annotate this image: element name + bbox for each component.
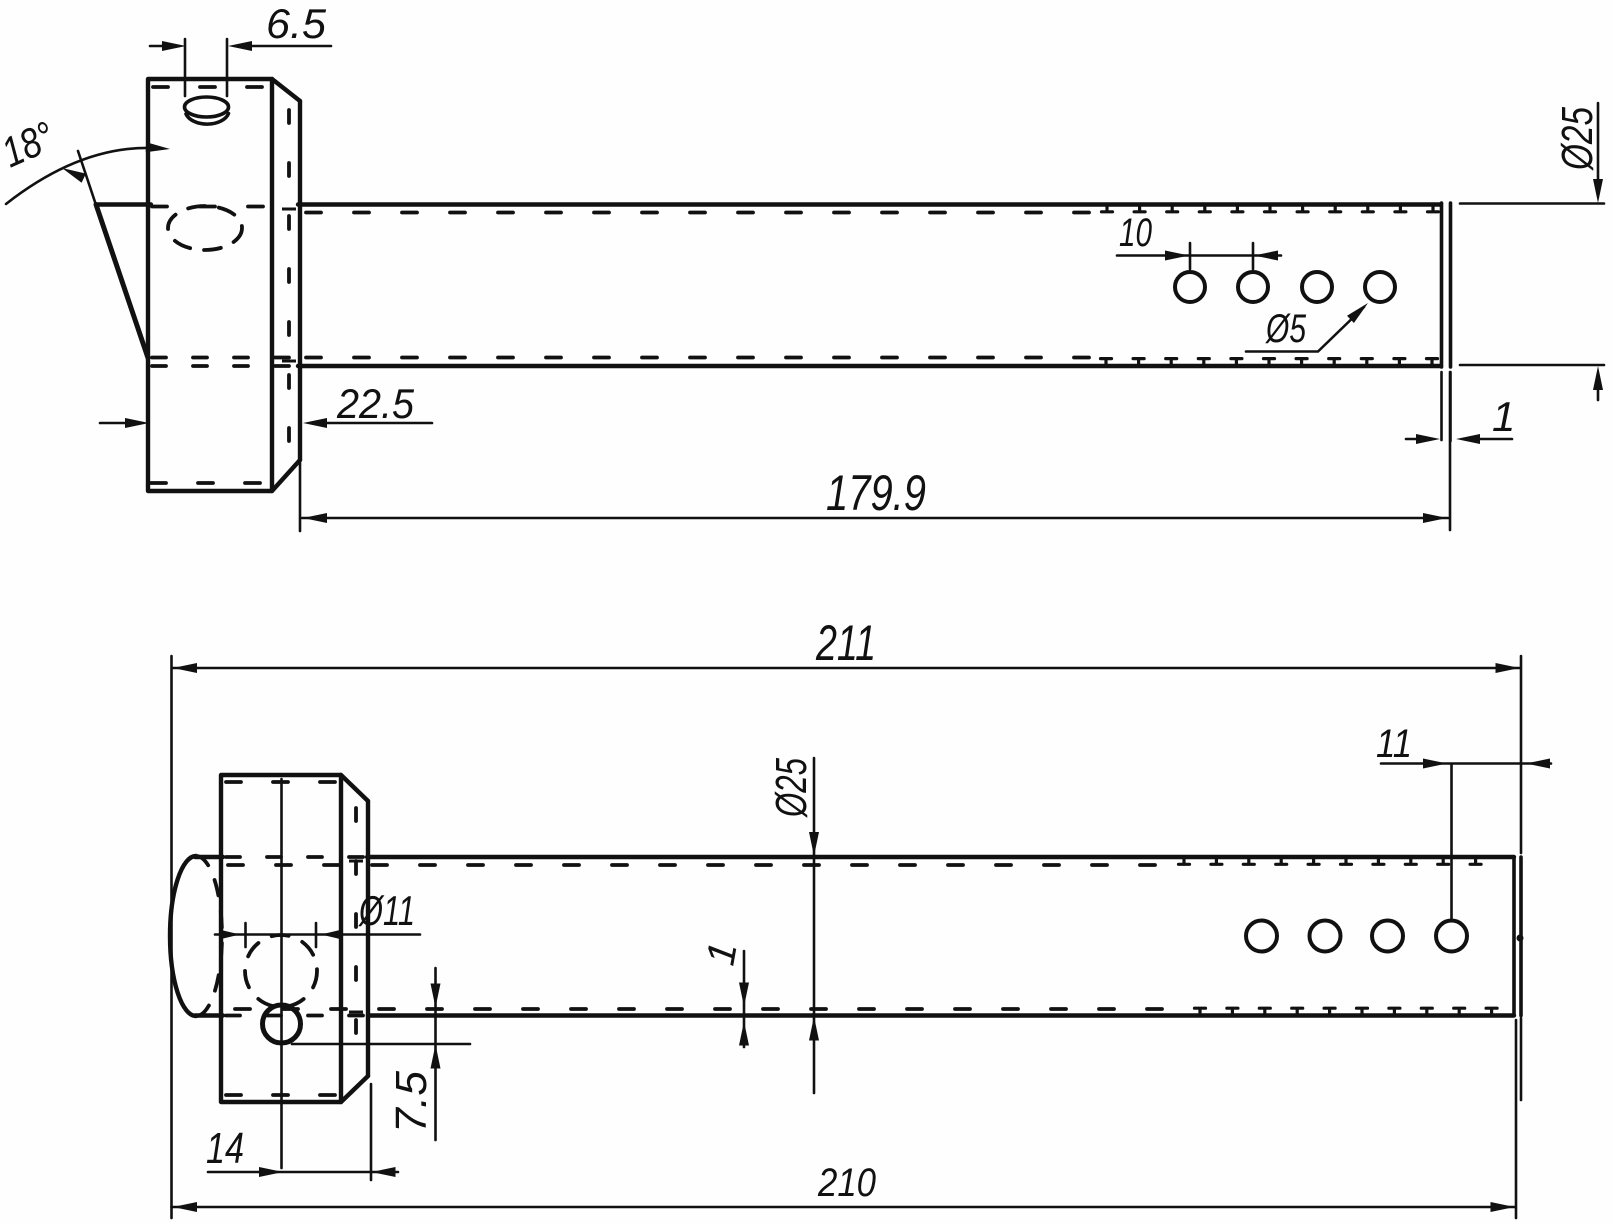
svg-text:1: 1 (1492, 393, 1515, 440)
svg-text:22.5: 22.5 (336, 380, 415, 427)
svg-text:11: 11 (1376, 722, 1412, 766)
svg-text:Ø25: Ø25 (1553, 107, 1602, 172)
svg-text:10: 10 (1119, 211, 1152, 255)
svg-text:Ø11: Ø11 (358, 887, 415, 934)
svg-text:14: 14 (206, 1124, 244, 1173)
svg-text:179.9: 179.9 (826, 465, 926, 521)
svg-text:Ø25: Ø25 (767, 758, 816, 819)
svg-text:6.5: 6.5 (266, 0, 327, 47)
svg-text:211: 211 (815, 615, 876, 671)
svg-text:7.5: 7.5 (387, 1070, 436, 1133)
svg-text:210: 210 (817, 1161, 876, 1205)
svg-text:Ø5: Ø5 (1265, 307, 1307, 351)
